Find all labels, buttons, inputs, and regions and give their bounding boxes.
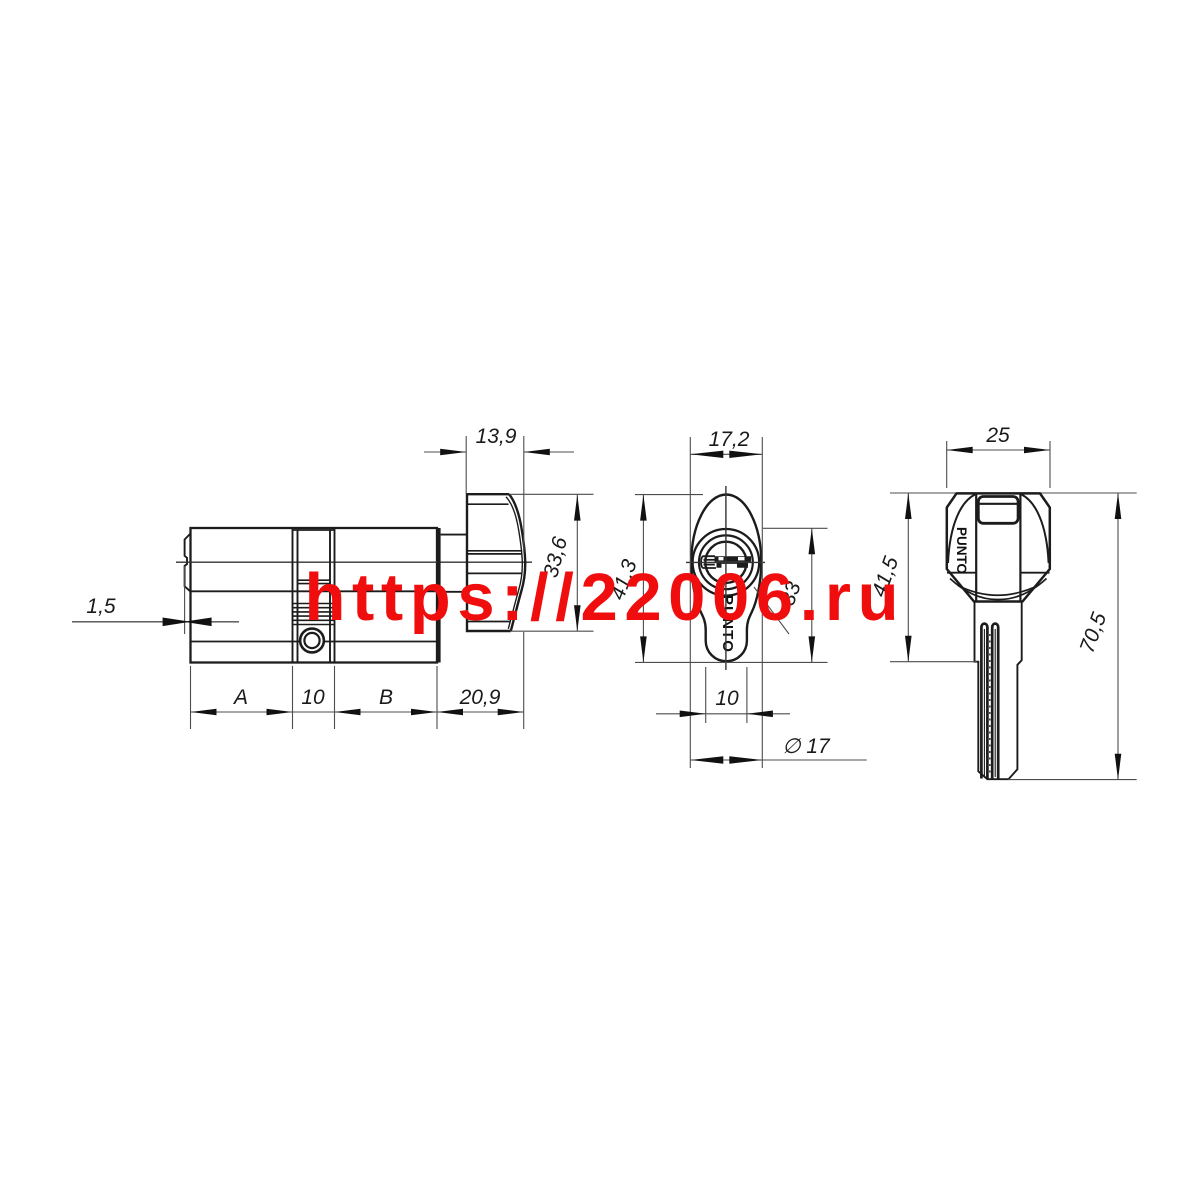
svg-text:PUNTO: PUNTO bbox=[954, 527, 969, 574]
svg-text:10: 10 bbox=[301, 686, 325, 709]
svg-text:https://22006.ru: https://22006.ru bbox=[305, 560, 899, 635]
svg-text:17,2: 17,2 bbox=[709, 428, 750, 451]
svg-text:A: A bbox=[232, 686, 248, 709]
svg-text:B: B bbox=[379, 686, 393, 709]
svg-text:∅ 17: ∅ 17 bbox=[782, 735, 831, 758]
svg-text:25: 25 bbox=[985, 424, 1010, 447]
svg-text:13,9: 13,9 bbox=[476, 425, 517, 448]
svg-text:1,5: 1,5 bbox=[86, 595, 116, 618]
svg-text:20,9: 20,9 bbox=[459, 686, 501, 709]
svg-text:10: 10 bbox=[715, 687, 739, 710]
